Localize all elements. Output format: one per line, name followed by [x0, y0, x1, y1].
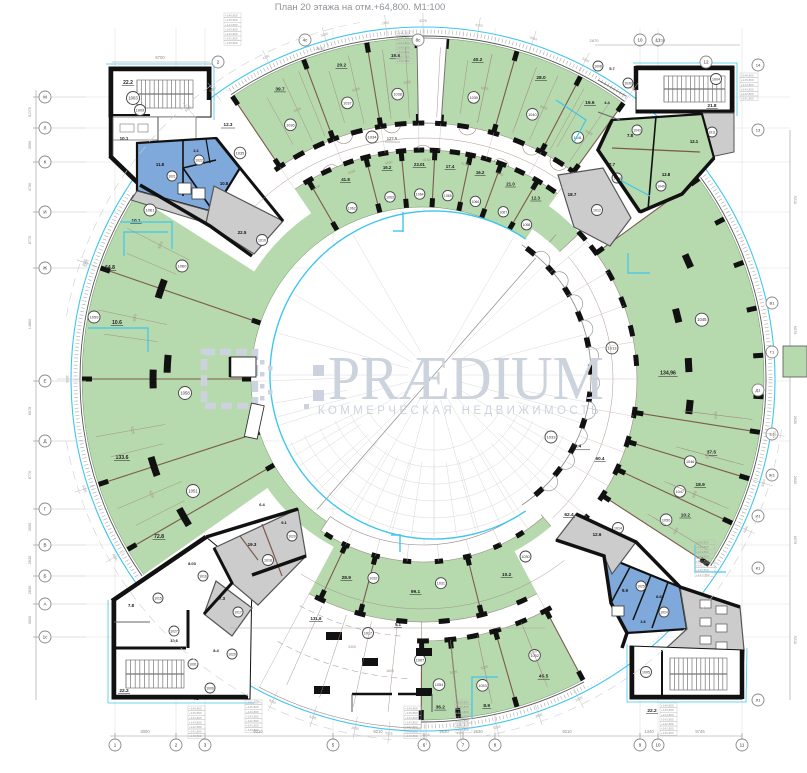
svg-text:А: А: [43, 602, 46, 607]
svg-text:1025: 1025: [637, 585, 645, 589]
svg-text:99.1: 99.1: [411, 589, 421, 595]
svg-text:+145,800: +145,800: [246, 705, 259, 709]
svg-text:11.8: 11.8: [156, 162, 165, 167]
svg-text:+140,800: +140,800: [661, 731, 674, 735]
svg-text:1045: 1045: [697, 317, 707, 322]
svg-text:1001: 1001: [189, 663, 197, 667]
svg-text:+143,800: +143,800: [225, 27, 238, 31]
svg-text:+142,800: +142,800: [741, 92, 754, 96]
svg-text:4.4: 4.4: [604, 100, 610, 105]
svg-text:2.2: 2.2: [193, 149, 198, 153]
svg-text:2670: 2670: [590, 38, 600, 43]
svg-text:1035: 1035: [236, 152, 244, 156]
svg-text:17.4: 17.4: [446, 164, 455, 169]
svg-text:6770: 6770: [28, 236, 32, 244]
svg-text:1058: 1058: [180, 391, 190, 396]
svg-text:5225: 5225: [403, 80, 411, 85]
svg-text:+146,800: +146,800: [189, 707, 202, 711]
svg-text:2630: 2630: [473, 729, 483, 734]
svg-text:6770: 6770: [28, 471, 32, 479]
svg-text:1041: 1041: [573, 136, 581, 140]
svg-text:+144,800: +144,800: [246, 710, 259, 714]
svg-text:1067: 1067: [499, 210, 507, 214]
svg-text:Б: Б: [44, 574, 47, 579]
svg-text:1039: 1039: [469, 96, 477, 100]
svg-text:+145,800: +145,800: [696, 545, 709, 549]
svg-text:3000: 3000: [140, 729, 150, 734]
svg-text:+141,800: +141,800: [456, 724, 469, 728]
svg-text:+143,800: +143,800: [405, 720, 418, 724]
svg-text:1037: 1037: [343, 101, 351, 105]
svg-text:1003: 1003: [128, 96, 138, 101]
svg-text:2400: 2400: [348, 645, 356, 649]
svg-text:10: 10: [655, 743, 661, 748]
svg-text:8.81: 8.81: [656, 594, 665, 599]
svg-text:1034: 1034: [368, 135, 378, 140]
svg-text:+14-1,800: +14-1,800: [696, 573, 710, 577]
svg-text:14: 14: [756, 63, 761, 68]
svg-text:1051: 1051: [188, 489, 198, 494]
svg-text:Е: Е: [43, 379, 46, 384]
svg-text:+141,800: +141,800: [246, 724, 259, 728]
svg-text:2630: 2630: [793, 476, 797, 484]
svg-text:1012: 1012: [593, 209, 601, 213]
svg-text:+145,800: +145,800: [397, 36, 410, 40]
svg-text:134,96: 134,96: [660, 371, 676, 377]
svg-text:1033: 1033: [547, 435, 557, 440]
svg-text:+140,800: +140,800: [225, 41, 238, 45]
svg-text:К1: К1: [756, 566, 761, 571]
svg-text:4с: 4с: [303, 38, 309, 43]
svg-text:1005: 1005: [642, 671, 650, 675]
svg-text:19.3: 19.3: [248, 542, 257, 547]
svg-text:5.7: 5.7: [609, 66, 615, 71]
svg-text:+140,800: +140,800: [696, 568, 709, 572]
svg-text:+141,800: +141,800: [225, 37, 238, 41]
svg-text:+145,800: +145,800: [456, 705, 469, 709]
svg-text:+142,800: +142,800: [661, 722, 674, 726]
svg-text:4700: 4700: [28, 183, 32, 191]
svg-text:+141,800: +141,800: [741, 97, 754, 101]
svg-text:+141,800: +141,800: [405, 730, 418, 734]
svg-text:12: 12: [703, 60, 709, 65]
svg-text:21.8: 21.8: [708, 103, 717, 108]
svg-text:4,700: 4,700: [655, 38, 666, 43]
svg-text:1600: 1600: [386, 669, 394, 673]
svg-text:+140,800: +140,800: [405, 734, 418, 738]
svg-text:Ж1: Ж1: [769, 473, 776, 478]
svg-text:1с: 1с: [43, 635, 49, 640]
svg-text:2630: 2630: [316, 46, 326, 51]
svg-text:+145,800: +145,800: [741, 78, 754, 82]
svg-text:5745: 5745: [695, 729, 705, 734]
svg-text:1011: 1011: [708, 131, 715, 135]
svg-text:+146,800: +146,800: [741, 74, 754, 78]
svg-text:1030: 1030: [521, 555, 529, 559]
svg-text:39.7: 39.7: [275, 86, 285, 92]
svg-text:1009: 1009: [136, 109, 144, 113]
svg-text:19.6: 19.6: [585, 100, 595, 106]
svg-text:6075: 6075: [793, 536, 797, 544]
svg-text:6.4: 6.4: [259, 502, 265, 507]
svg-text:64.8: 64.8: [105, 265, 115, 271]
svg-text:1061: 1061: [146, 208, 156, 213]
svg-text:+141,800: +141,800: [189, 730, 202, 734]
svg-text:PRÆDIUM: PRÆDIUM: [328, 345, 604, 413]
svg-text:7.8: 7.8: [627, 133, 634, 138]
svg-text:1020: 1020: [288, 535, 296, 539]
svg-text:6075: 6075: [28, 407, 32, 415]
svg-text:18.9: 18.9: [696, 482, 706, 488]
svg-text:6700: 6700: [155, 55, 165, 60]
svg-text:+140,800: +140,800: [397, 59, 410, 63]
svg-text:40.2: 40.2: [473, 57, 483, 63]
svg-text:1054: 1054: [435, 683, 443, 687]
svg-text:5225: 5225: [713, 411, 718, 419]
svg-text:+141,800: +141,800: [397, 55, 410, 59]
svg-text:1053: 1053: [478, 684, 486, 688]
svg-text:+144,800: +144,800: [189, 716, 202, 720]
svg-text:3000: 3000: [28, 523, 32, 531]
svg-text:12.1: 12.1: [690, 139, 699, 144]
svg-text:12.8: 12.8: [662, 172, 671, 177]
svg-text:И: И: [43, 210, 46, 215]
svg-text:+146,800: +146,800: [456, 701, 469, 705]
svg-text:В: В: [43, 543, 46, 548]
svg-text:16.2: 16.2: [476, 170, 485, 175]
svg-text:9.9: 9.9: [622, 588, 629, 593]
svg-text:1065: 1065: [444, 194, 452, 198]
svg-text:2630: 2630: [439, 729, 449, 734]
svg-text:127,5: 127,5: [387, 136, 398, 141]
svg-text:9.1: 9.1: [281, 520, 287, 525]
svg-text:1047: 1047: [676, 490, 684, 494]
svg-text:+143,800: +143,800: [661, 717, 674, 721]
svg-text:8.03: 8.03: [188, 561, 197, 566]
svg-text:Д1: Д1: [756, 388, 762, 393]
svg-text:1036: 1036: [286, 123, 294, 127]
svg-text:1016: 1016: [199, 575, 207, 579]
svg-text:16.2: 16.2: [383, 165, 392, 170]
svg-text:4.8: 4.8: [193, 696, 199, 701]
svg-text:133.6: 133.6: [116, 455, 129, 461]
svg-text:1032: 1032: [369, 576, 377, 580]
svg-text:12.3: 12.3: [224, 122, 233, 127]
svg-text:28.0: 28.0: [536, 75, 546, 81]
svg-text:+146,800: +146,800: [246, 701, 259, 705]
svg-text:4150: 4150: [423, 158, 431, 162]
svg-text:23.01: 23.01: [414, 162, 426, 167]
svg-text:10.6: 10.6: [112, 320, 122, 326]
svg-text:+142,800: +142,800: [456, 719, 469, 723]
svg-text:18.7: 18.7: [568, 192, 577, 197]
svg-text:8с: 8с: [416, 38, 422, 43]
svg-text:2630: 2630: [793, 416, 797, 424]
svg-text:1030: 1030: [624, 82, 632, 86]
svg-text:36.2: 36.2: [436, 705, 446, 711]
svg-text:45.5: 45.5: [539, 674, 549, 680]
svg-text:8.9: 8.9: [483, 703, 490, 709]
svg-text:М: М: [43, 95, 47, 100]
svg-text:+143,800: +143,800: [741, 87, 754, 91]
svg-text:1006: 1006: [206, 687, 214, 691]
svg-text:+142,800: +142,800: [189, 725, 202, 729]
svg-text:2630: 2630: [28, 586, 32, 594]
svg-text:+146,800: +146,800: [225, 14, 238, 18]
svg-text:Г1: Г1: [770, 350, 775, 355]
svg-text:10.1: 10.1: [120, 136, 129, 141]
svg-text:+144,800: +144,800: [741, 83, 754, 87]
svg-text:1024: 1024: [660, 611, 668, 615]
svg-text:+146,800: +146,800: [397, 32, 410, 36]
svg-text:+143,800: +143,800: [397, 45, 410, 49]
svg-text:22.2: 22.2: [119, 688, 129, 694]
svg-text:К: К: [44, 160, 47, 165]
svg-text:60.4: 60.4: [596, 456, 605, 461]
svg-text:9210: 9210: [562, 729, 572, 734]
svg-text:+141,800: +141,800: [661, 727, 674, 731]
svg-text:+145,800: +145,800: [405, 711, 418, 715]
svg-text:1060: 1060: [178, 264, 188, 269]
svg-text:1068: 1068: [523, 223, 531, 227]
svg-text:+145,800: +145,800: [661, 708, 674, 712]
svg-text:1062: 1062: [348, 206, 356, 210]
svg-text:20.2: 20.2: [337, 63, 347, 69]
svg-text:В1: В1: [770, 301, 776, 306]
svg-text:1063: 1063: [386, 195, 394, 199]
svg-text:10.8: 10.8: [220, 181, 229, 186]
svg-text:1014: 1014: [614, 527, 622, 531]
svg-text:13: 13: [756, 128, 761, 133]
svg-text:+140,800: +140,800: [246, 728, 259, 732]
svg-text:1064: 1064: [416, 193, 424, 197]
svg-text:1066: 1066: [472, 200, 480, 204]
svg-text:3000: 3000: [28, 616, 32, 624]
svg-text:62.4: 62.4: [564, 512, 574, 518]
svg-text:+145,800: +145,800: [225, 18, 238, 22]
svg-text:3000: 3000: [28, 141, 32, 149]
svg-text:11: 11: [740, 743, 745, 748]
svg-text:1004: 1004: [712, 78, 720, 82]
svg-text:5.1: 5.1: [395, 622, 401, 627]
svg-text:1046: 1046: [686, 460, 694, 464]
svg-text:Д: Д: [43, 439, 46, 444]
svg-text:22.2: 22.2: [123, 80, 133, 86]
svg-text:1031: 1031: [437, 582, 445, 586]
svg-text:1029: 1029: [228, 653, 236, 657]
svg-text:6,075: 6,075: [28, 107, 32, 117]
svg-text:1017: 1017: [234, 611, 242, 615]
svg-text:+142,800: +142,800: [225, 32, 238, 36]
svg-text:8.4: 8.4: [213, 648, 219, 653]
svg-text:1017: 1017: [364, 632, 372, 636]
svg-text:+143,800: +143,800: [696, 554, 709, 558]
svg-text:+145,800: +145,800: [189, 711, 202, 715]
svg-text:12.6: 12.6: [593, 532, 602, 537]
svg-text:41.8: 41.8: [341, 177, 350, 182]
svg-text:1059: 1059: [90, 315, 100, 320]
svg-text:3.8: 3.8: [640, 620, 645, 624]
svg-text:+146,800: +146,800: [405, 707, 418, 711]
svg-text:10.2: 10.2: [681, 512, 691, 518]
svg-text:+143,800: +143,800: [246, 714, 259, 718]
svg-text:10: 10: [637, 38, 643, 43]
svg-text:1021: 1021: [168, 175, 176, 179]
svg-text:+144,800: +144,800: [405, 716, 418, 720]
svg-text:+144,800: +144,800: [225, 23, 238, 27]
svg-text:+142,800: +142,800: [696, 559, 709, 563]
svg-text:1340: 1340: [644, 729, 654, 734]
svg-text:1040: 1040: [528, 113, 536, 117]
svg-text:+141,800: +141,800: [696, 564, 709, 568]
svg-text:1022: 1022: [195, 159, 203, 163]
svg-text:1015: 1015: [154, 597, 162, 601]
svg-text:+142,800: +142,800: [397, 50, 410, 54]
svg-text:1038: 1038: [393, 93, 401, 97]
svg-text:Л: Л: [44, 126, 47, 131]
svg-text:1018: 1018: [264, 559, 272, 563]
svg-text:+146,800: +146,800: [661, 704, 674, 708]
svg-text:22.2: 22.2: [647, 708, 657, 714]
svg-text:6075: 6075: [793, 326, 797, 334]
svg-text:+142,800: +142,800: [405, 725, 418, 729]
svg-text:1008: 1008: [594, 65, 602, 69]
svg-text:+143,800: +143,800: [189, 720, 202, 724]
svg-text:+144,800: +144,800: [456, 710, 469, 714]
svg-text:Л1: Л1: [756, 698, 762, 703]
svg-text:И1: И1: [755, 514, 761, 519]
svg-text:22.5: 22.5: [238, 230, 247, 235]
svg-text:9210: 9210: [793, 636, 797, 644]
svg-text:72.8: 72.8: [154, 534, 164, 540]
svg-text:+142,800: +142,800: [246, 719, 259, 723]
svg-text:10.2: 10.2: [502, 572, 512, 578]
svg-text:9210: 9210: [793, 196, 797, 204]
svg-text:КОММЕРЧЕСКАЯ НЕДВИЖИМОСТЬ: КОММЕРЧЕСКАЯ НЕДВИЖИМОСТЬ: [318, 405, 602, 417]
svg-text:1027: 1027: [170, 630, 178, 634]
svg-text:7.8: 7.8: [128, 603, 135, 608]
svg-text:1043: 1043: [633, 129, 641, 133]
svg-text:+144,800: +144,800: [397, 41, 410, 45]
svg-text:1010: 1010: [258, 239, 266, 243]
svg-text:План 20 этажа на отм.+64,800.: План 20 этажа на отм.+64,800. М1:100: [275, 2, 446, 13]
svg-text:2630: 2630: [28, 556, 32, 564]
svg-text:21.0: 21.0: [506, 181, 515, 186]
svg-text:9210: 9210: [373, 729, 383, 734]
svg-text:1049: 1049: [657, 185, 665, 189]
svg-text:+140,800: +140,800: [189, 734, 202, 738]
svg-text:1007: 1007: [416, 659, 424, 663]
svg-text:14850: 14850: [28, 319, 32, 330]
svg-text:+143,800: +143,800: [456, 714, 469, 718]
svg-text:28.9: 28.9: [342, 575, 352, 581]
svg-text:+144,800: +144,800: [696, 550, 709, 554]
svg-text:60.4: 60.4: [572, 443, 582, 449]
svg-text:+144,800: +144,800: [661, 713, 674, 717]
svg-text:12.3: 12.3: [531, 195, 540, 200]
svg-text:1050: 1050: [662, 518, 670, 522]
